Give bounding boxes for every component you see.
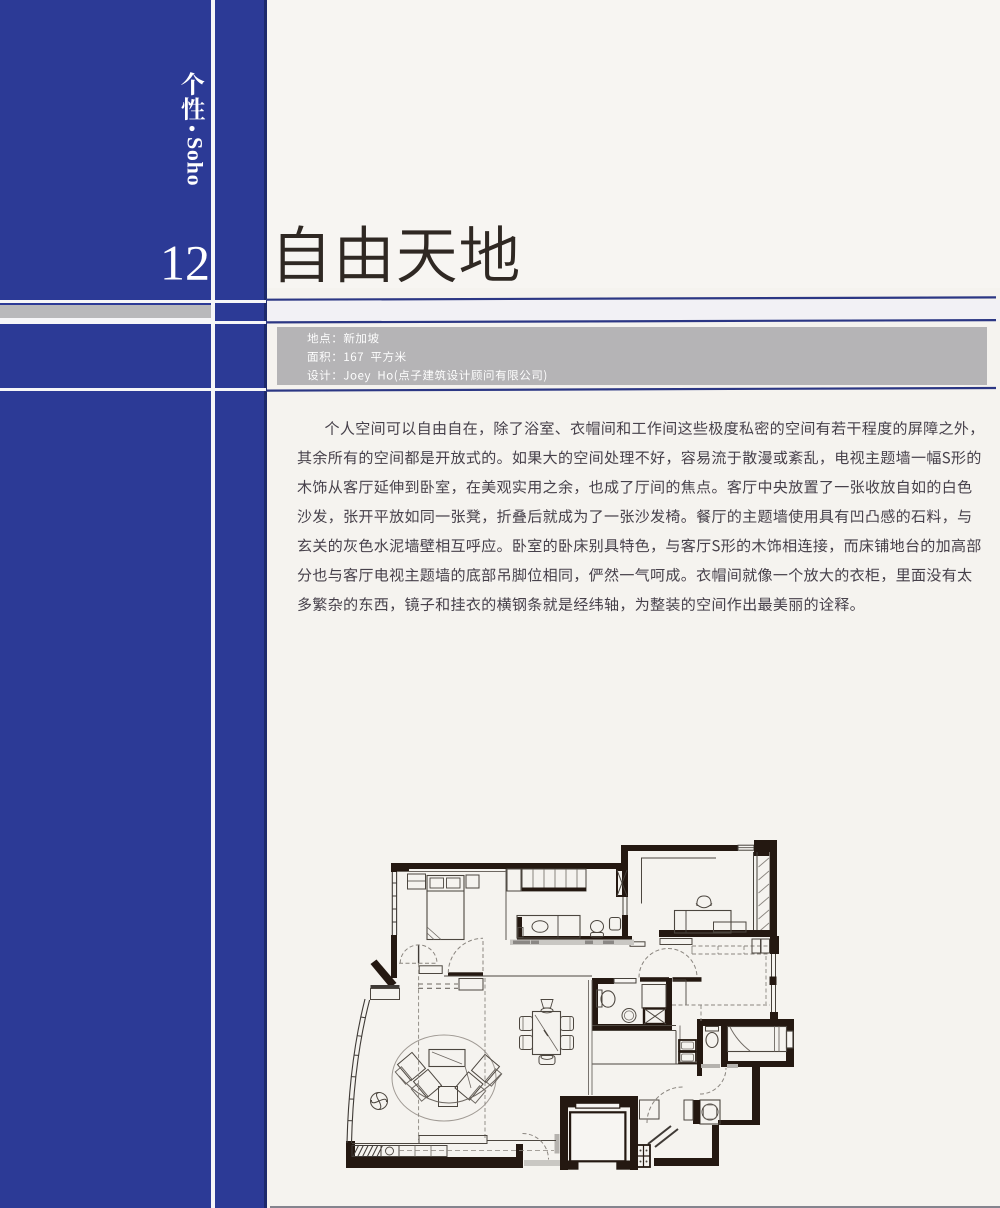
svg-text:12: 12 bbox=[160, 235, 210, 291]
svg-text:Soho: Soho bbox=[183, 137, 208, 186]
